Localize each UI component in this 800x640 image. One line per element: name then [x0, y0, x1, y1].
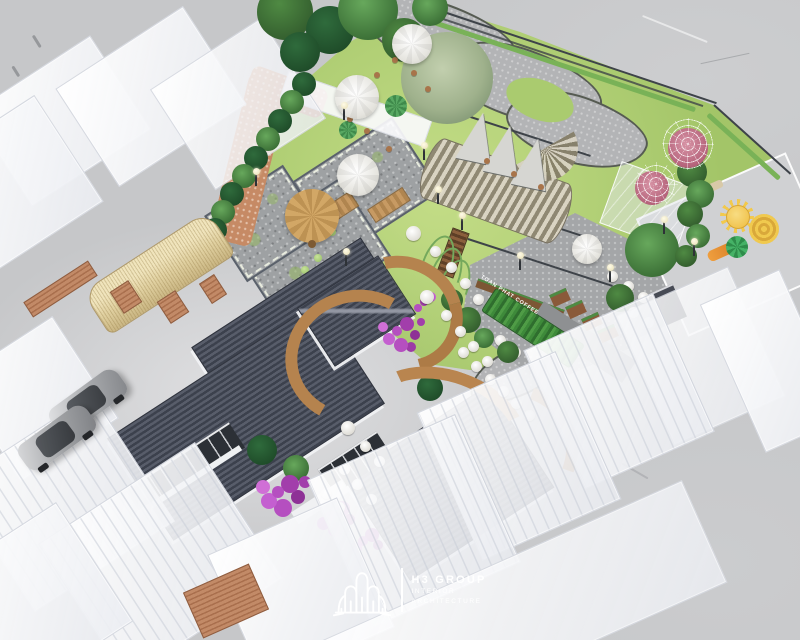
- parasol: [430, 246, 441, 257]
- shrub: [497, 341, 519, 363]
- logo-divider: [401, 568, 403, 612]
- street-lamp: [345, 254, 347, 266]
- teepee-table: [511, 171, 517, 177]
- tree: [625, 223, 679, 277]
- parasol: [341, 421, 355, 435]
- gazebo-pole: [308, 240, 316, 248]
- street-lamp: [255, 174, 257, 186]
- parasol: [482, 356, 493, 367]
- white-umbrella: [392, 24, 432, 64]
- street-lamp: [343, 108, 345, 120]
- palm-tree: [385, 95, 407, 117]
- brick-pier: [199, 274, 227, 304]
- h3-group-logo-icon: [332, 560, 392, 620]
- road-crack: [642, 15, 707, 43]
- parasol: [468, 341, 479, 352]
- street-lamp: [437, 192, 439, 204]
- logo-field-line1: INTERIOR: [412, 587, 487, 597]
- garden-table: [411, 70, 417, 76]
- spiral-slide: [749, 214, 779, 244]
- logo-lockup: H3 GROUP INTERIOR ARCHITECTURE: [332, 560, 487, 620]
- logo-text-block: H3 GROUP INTERIOR ARCHITECTURE: [412, 573, 487, 607]
- logo-company-name: H3 GROUP: [412, 573, 487, 587]
- parasol: [441, 310, 452, 321]
- thatched-gate-roof: [82, 210, 236, 335]
- street-lamp: [461, 218, 463, 230]
- brick-boundary-wall: [23, 260, 97, 317]
- parasol: [360, 441, 371, 452]
- parasol: [406, 226, 421, 241]
- palm-sculpture: [726, 236, 748, 258]
- parasol: [455, 326, 466, 337]
- logo-field-line2: ARCHITECTURE: [412, 597, 487, 607]
- parasol: [460, 278, 471, 289]
- palm-planting: [247, 435, 277, 465]
- sun-sculpture: [726, 205, 750, 229]
- circular-trellis-sculpture: [634, 162, 678, 206]
- street-lamp: [423, 148, 425, 160]
- street-lamp: [693, 244, 695, 256]
- garden-table: [374, 72, 380, 78]
- road-crack: [700, 53, 749, 65]
- garden-table: [386, 146, 392, 152]
- white-umbrella: [572, 234, 602, 264]
- street-lamp: [663, 222, 665, 234]
- tree: [280, 32, 320, 72]
- straw-parasol-gazebo: [285, 189, 339, 243]
- palm-tree: [339, 121, 357, 139]
- street-lamp: [609, 270, 611, 282]
- teepee-table: [538, 184, 544, 190]
- parasol: [473, 294, 484, 305]
- render-canvas: TOAN PHAT COFFEE: [0, 0, 800, 640]
- road-crack: [32, 35, 42, 48]
- road-crack: [12, 65, 20, 77]
- street-lamp: [519, 258, 521, 270]
- circular-trellis-sculpture: [662, 118, 714, 170]
- white-umbrella: [335, 75, 379, 119]
- garden-table: [364, 128, 370, 134]
- teepee-table: [484, 158, 490, 164]
- parasol: [458, 347, 469, 358]
- shrub: [686, 224, 710, 248]
- bougainvillea: [392, 326, 402, 336]
- white-umbrella: [337, 154, 379, 196]
- palm-planting: [283, 455, 309, 481]
- mint-round-table: [314, 254, 322, 262]
- garden-table: [425, 86, 431, 92]
- bougainvillea: [272, 486, 284, 498]
- parasol: [420, 290, 434, 304]
- parasol: [446, 262, 457, 273]
- parasol: [471, 361, 482, 372]
